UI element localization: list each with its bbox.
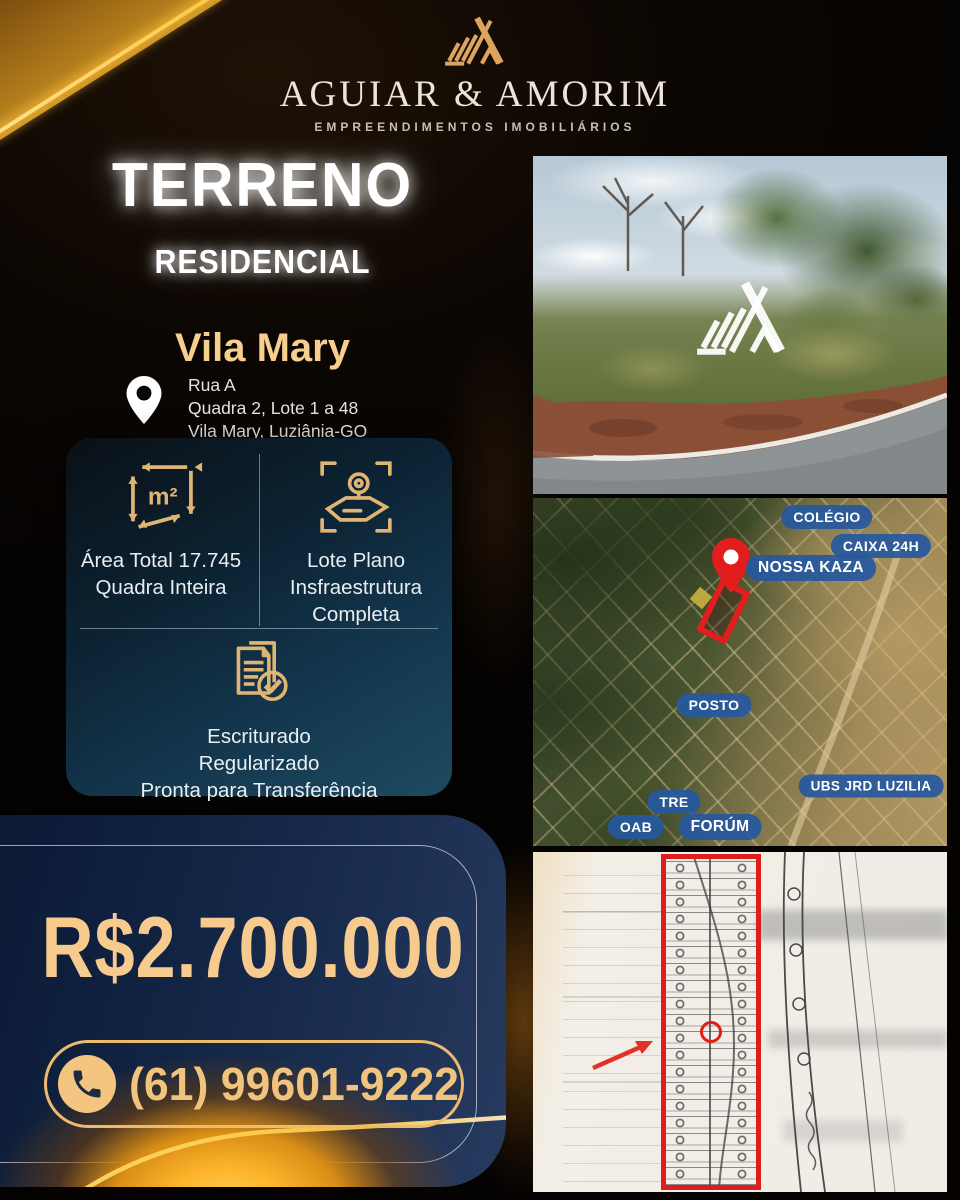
headline-residencial: RESIDENCIAL	[39, 243, 485, 281]
address-text: Rua A Quadra 2, Lote 1 a 48 Vila Mary, L…	[188, 374, 367, 443]
square-meters-icon: m²	[118, 454, 204, 540]
red-arrow-icon	[593, 1041, 653, 1068]
docs-line-3: Pronta para Transferência	[66, 777, 452, 804]
plat-document-scan	[533, 852, 947, 1192]
real-estate-flyer: AGUIAR & AMORIM EMPREENDIMENTOS IMOBILIÁ…	[0, 0, 960, 1200]
address-line-1: Rua A	[188, 374, 367, 397]
location-pin-icon	[126, 376, 162, 424]
lot-line-2: Insfraestrutura	[266, 574, 446, 601]
lot-line-3: Completa	[266, 601, 446, 628]
lot-text: Lote Plano Insfraestrutura Completa	[266, 547, 446, 628]
map-label-colegio: COLÉGIO	[781, 505, 872, 529]
feature-lot: Lote Plano Insfraestrutura Completa	[266, 450, 446, 628]
red-pin-icon	[712, 538, 750, 593]
phone-button[interactable]: (61) 99601-9222	[44, 1040, 464, 1128]
square-meters-label: m²	[148, 483, 178, 510]
feature-area: m² Área Total 17.745 Quadra Inteira	[71, 450, 251, 601]
docs-text: Escriturado Regularizado Pronta para Tra…	[66, 723, 452, 804]
address-block: Rua A Quadra 2, Lote 1 a 48 Vila Mary, L…	[126, 374, 367, 443]
flat-lot-map-icon	[313, 454, 399, 540]
red-circle-marker	[700, 1021, 722, 1043]
photo-watermark-logo-icon	[691, 276, 793, 358]
map-label-oab: OAB	[608, 815, 664, 839]
docs-line-2: Regularizado	[66, 750, 452, 777]
neighborhood-name: Vila Mary	[20, 326, 505, 371]
map-label-ubs: UBS JRD LUZILIA	[799, 775, 944, 798]
land-photo	[533, 156, 947, 494]
card-horizontal-divider	[80, 628, 438, 629]
area-line-2: Quadra Inteira	[71, 574, 251, 601]
address-line-2: Quadra 2, Lote 1 a 48	[188, 397, 367, 420]
brand-triangle-logo-icon	[441, 13, 509, 68]
card-vertical-divider	[259, 454, 260, 626]
price-value: R$2.700.000	[40, 899, 465, 998]
features-card: m² Área Total 17.745 Quadra Inteira Lote…	[66, 438, 452, 796]
gold-swoosh-line	[0, 815, 506, 1187]
satellite-map: COLÉGIO CAIXA 24H NOSSA KAZA POSTO TRE O…	[533, 498, 947, 846]
price-panel	[0, 815, 506, 1187]
docs-line-1: Escriturado	[66, 723, 452, 750]
phone-icon	[58, 1055, 116, 1113]
area-line-1: Área Total 17.745	[71, 547, 251, 574]
feature-docs: Escriturado Regularizado Pronta para Tra…	[66, 632, 452, 804]
area-text: Área Total 17.745 Quadra Inteira	[71, 547, 251, 601]
phone-number: (61) 99601-9222	[129, 1057, 459, 1111]
map-label-posto: POSTO	[677, 693, 752, 717]
map-label-forum: FORÚM	[679, 814, 762, 840]
brand-tagline: EMPREENDIMENTOS IMOBILIÁRIOS	[0, 120, 950, 134]
headline-terreno: TERRENO	[32, 150, 493, 221]
document-check-icon	[217, 634, 301, 718]
map-label-nossa-kaza: NOSSA KAZA	[746, 555, 876, 581]
map-label-tre: TRE	[647, 790, 700, 814]
lot-line-1: Lote Plano	[266, 547, 446, 574]
gold-corner-decoration	[0, 0, 222, 140]
brand-name: AGUIAR & AMORIM	[0, 73, 950, 116]
